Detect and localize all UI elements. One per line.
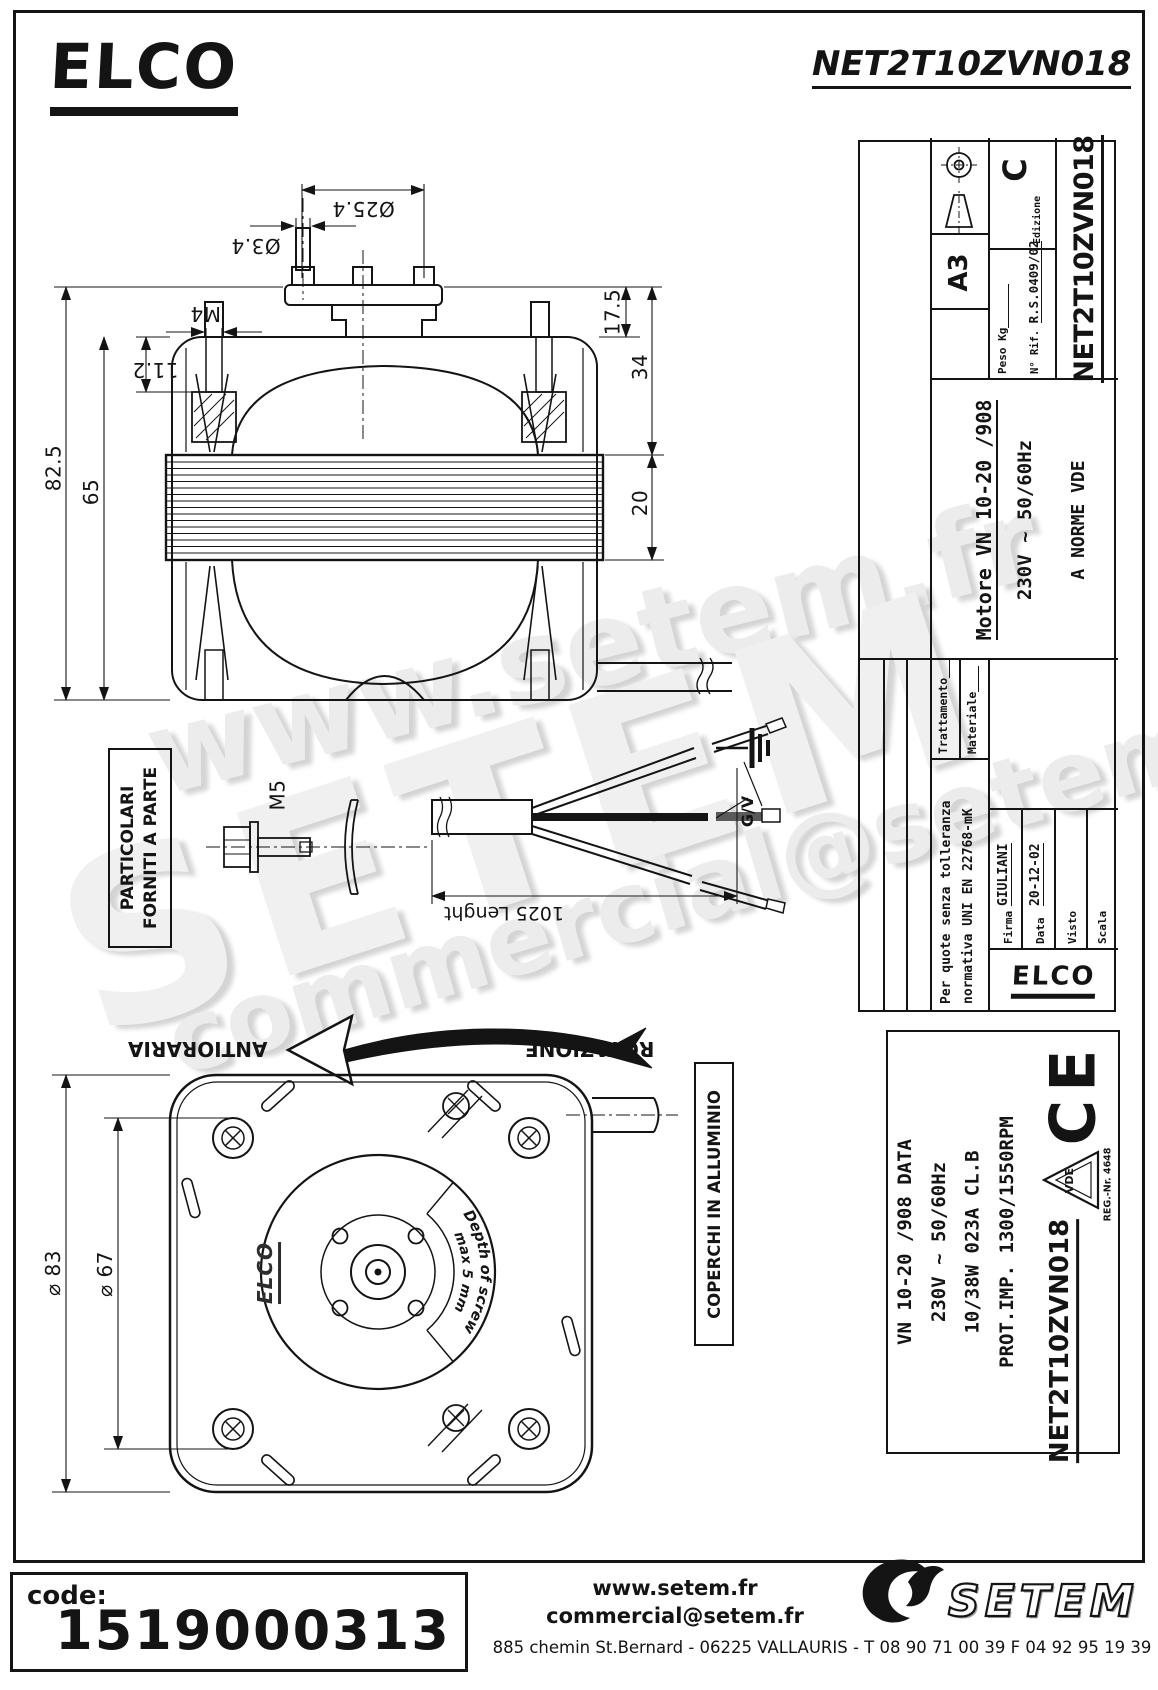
- product-line2: 230V ~ 50/60Hz: [1014, 382, 1036, 658]
- bottom-view-drawing: [52, 1075, 678, 1492]
- bottom-view-dimensions: [52, 1075, 230, 1492]
- dim-dia-83: ⌀ 83: [40, 1238, 66, 1308]
- rif-value: R.S.0409/02: [1026, 241, 1042, 324]
- vde-mark-label: VDE: [1058, 1164, 1082, 1196]
- footer-address: 885 chemin St.Bernard - 06225 VALLAURIS …: [492, 1638, 1152, 1657]
- title-block-logo-text: ELCO: [1010, 961, 1095, 998]
- dim-65: 65: [78, 466, 104, 518]
- cast-logo: ELCO: [238, 1242, 296, 1304]
- edition-value: C: [996, 148, 1034, 192]
- parts-note-line1: PARTICOLARI: [117, 767, 140, 929]
- cable-drawing: [432, 718, 786, 913]
- footer-email: commercial@setem.fr: [545, 1604, 805, 1628]
- m5-label: M5: [262, 772, 292, 818]
- dim-stud-thread: M4: [182, 302, 228, 326]
- sheet-format: A3: [930, 235, 988, 310]
- setem-bird-icon: [863, 1559, 944, 1622]
- top-view-dimensions: [54, 184, 664, 700]
- top-view-drawing: [54, 184, 732, 700]
- material-field: Materiale: [965, 666, 979, 754]
- footer-brand-logo: SETEM: [948, 1576, 1139, 1627]
- parts-note-line2: FORNITI A PARTE: [140, 767, 163, 929]
- tolerance-line1: Per quote senza tolleranza: [936, 801, 958, 1005]
- elco-logo-text: ELCO: [48, 30, 240, 103]
- parts-note-box: PARTICOLARI FORNITI A PARTE: [108, 748, 172, 948]
- data-label: Data: [1034, 918, 1047, 945]
- elco-logo: ELCO: [50, 30, 238, 116]
- rotation-label: ROTAZIONE: [514, 1034, 666, 1064]
- left-nut-hatch: [192, 392, 236, 442]
- rotation-direction-label: ANTIORARIA: [118, 1034, 278, 1064]
- cable-length-dim: 1025 Lenght: [446, 900, 562, 926]
- drawing-title: NET2T10ZVN018: [812, 44, 1124, 84]
- shaft-flange: [285, 198, 442, 440]
- dim-pin-dia: Ø3.4: [224, 234, 288, 258]
- cover-note-box: COPERCHI IN ALLUMINIO: [694, 1062, 734, 1346]
- code-value: 1519000313: [53, 1599, 453, 1662]
- spec-part-number: NET2T10ZVN018: [1040, 1234, 1084, 1448]
- rif-field: N° Rif. R.S.0409/02: [1026, 241, 1041, 374]
- screw-depth-band: [427, 1182, 454, 1361]
- title-block-part-number: NET2T10ZVN018: [1056, 140, 1116, 378]
- ground-wire-label: G/V: [734, 790, 762, 832]
- spec-line-4: PROT.IMP. 1300/1550RPM: [990, 1040, 1024, 1444]
- spec-line-3: 10/38W 023A CL.B: [956, 1040, 990, 1444]
- product-line3: A NORME VDE: [1068, 382, 1089, 658]
- title-block-logo: ELCO: [990, 950, 1116, 1010]
- scala-label: Scala: [1096, 911, 1109, 944]
- dim-20: 20: [628, 482, 652, 524]
- bottom-shaft: [566, 1098, 678, 1132]
- treatment-field: Trattamento: [936, 660, 950, 754]
- cable-exit: [597, 658, 732, 694]
- ce-mark: CE: [1028, 1036, 1118, 1150]
- dim-82-5: 82.5: [40, 432, 66, 504]
- spec-line-1: VN 10-20 /908 DATA: [888, 1040, 922, 1444]
- firma-label: Firma: [1002, 911, 1015, 944]
- tolerance-line2: normativa UNI EN 22768-mK: [958, 801, 980, 1005]
- cover-note-text: COPERCHI IN ALLUMINIO: [705, 1090, 724, 1319]
- m5-screw-drawing: [206, 800, 430, 894]
- title-block: Per quote senza tolleranza normativa UNI…: [858, 140, 1116, 1012]
- dim-flange-dia: Ø25.4: [320, 196, 406, 222]
- lamination-lines: [166, 462, 603, 553]
- dim-17-5: 17.5: [598, 284, 626, 340]
- vde-reg-number: REG.-Nr. 4648: [1098, 1140, 1118, 1228]
- footer-website: www.setem.fr: [545, 1576, 805, 1600]
- code-box: code: 1519000313: [10, 1572, 468, 1672]
- dim-34: 34: [628, 344, 652, 390]
- spec-line-2: 230V ~ 50/60Hz: [922, 1040, 956, 1444]
- visto-label: Visto: [1066, 911, 1079, 944]
- tolerance-note: Per quote senza tolleranza normativa UNI…: [936, 801, 980, 1005]
- firma-value: GIULIANI: [996, 843, 1012, 906]
- dim-dia-67: ⌀ 67: [92, 1242, 118, 1306]
- edition-label: Edizione: [1032, 196, 1043, 244]
- elco-logo-underline: [50, 107, 238, 116]
- peso-field: Peso Kg: [996, 284, 1009, 374]
- dim-11-2: 11.2: [124, 358, 186, 382]
- projection-symbol-icon: [930, 138, 988, 235]
- data-value: 20-12-02: [1028, 843, 1044, 906]
- product-line1: Motore VN 10-20 /908: [972, 382, 996, 658]
